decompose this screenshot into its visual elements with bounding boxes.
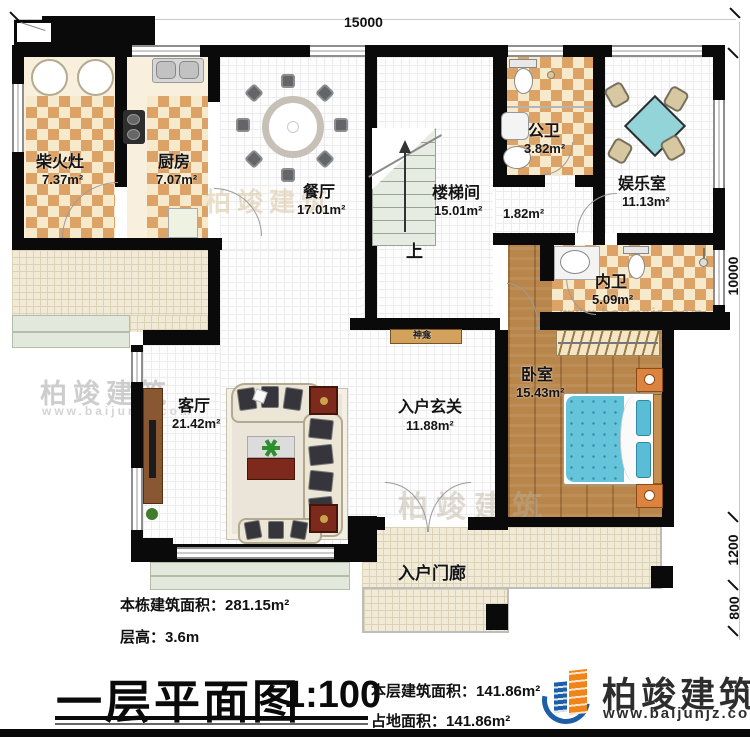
sofa-cushion [290,520,309,541]
room-area-kitchen: 7.07m² [156,173,197,187]
bed-headboard [653,394,662,484]
shower-head [699,258,708,267]
bed-pillow [636,400,651,436]
window [310,45,365,57]
top-dimension-label: 15000 [344,14,383,30]
room-area-foyer: 11.88m² [406,419,454,433]
wall-foyer-bottom [350,517,385,530]
left-terrace [12,250,208,315]
stove-burner [31,59,68,96]
terrace-step [12,332,130,348]
floor-height-label: 层高： [120,629,165,646]
room-area-hallway: 1.82m² [503,207,544,221]
living-front-step [150,562,350,576]
logo-building-orange [569,669,587,715]
bed-mattress [566,396,624,482]
dining-chair [334,118,348,132]
wall-inner-bath-left [540,245,554,281]
window [12,84,24,152]
pillar-porch-east [651,566,673,588]
sofa-cushion [308,418,334,440]
toilet-bowl [514,68,533,94]
room-label-public-bath: 公卫 [528,124,560,141]
nightstand-knob [644,490,655,501]
bath-sink [560,250,590,274]
kitchen-appliance [168,208,198,238]
sofa-cushion [244,520,263,541]
brand-logo-icon [542,664,598,726]
room-label-bedroom: 卧室 [521,368,553,385]
wall-bedroom-bottom [508,517,674,527]
building-area-label: 本栋建筑面积： [120,597,225,614]
stairs-up-label: 上 [406,243,423,261]
coffee-table-bottom [247,458,295,480]
footprint-label: 占地面积： [371,713,446,730]
dining-table-center [287,121,299,133]
wall-foyer-bottom [468,517,508,530]
room-label-inner-bath: 内卫 [595,275,627,292]
living-front-step [150,576,350,590]
dining-chair [281,168,295,182]
dimension-tick [729,7,740,18]
room-area-dining: 17.01m² [297,203,345,217]
window [132,45,200,57]
sofa-cushion [268,521,284,539]
room-label-porch: 入户门廊 [398,565,466,583]
title-underline-thin [55,723,368,725]
toilet-bowl [628,254,645,279]
gas-burner [127,114,140,125]
stove-burner [77,59,114,96]
floor-height-line: 层高：3.6m [120,626,199,647]
nightstand [636,368,663,392]
floor-area-line: 本层建筑面积：141.86m² [371,680,540,701]
scale-label: 1:100 [284,674,381,717]
room-label-stairwell: 楼梯间 [432,186,480,203]
room-area-inner-bath: 5.09m² [592,293,633,307]
sink-basin [156,61,176,79]
pillar-porch-south [486,604,508,630]
wall-living-top-left [143,330,220,345]
pillar-living-sw [131,538,173,562]
room-area-entertainment: 11.13m² [622,195,670,209]
wall-kitchen-bottom [12,238,222,250]
logo-building-blue [554,681,567,712]
bottom-border-bar [0,729,750,737]
building-area-value: 281.15m² [225,597,289,614]
dimension-tick [727,511,738,522]
tv-screen [149,420,156,478]
wall-kitchen-dining [208,57,220,102]
terrace-step [12,315,130,332]
right-dimension-label-10000: 10000 [725,248,741,304]
wall-terrace-dining [208,250,220,330]
sofa-cushion [283,387,304,411]
room-label-firewood: 柴火灶 [36,155,84,172]
room-area-living: 21.42m² [172,417,220,431]
footprint-value: 141.86m² [446,713,510,730]
gas-burner [127,129,140,140]
right-dimension-label-1200: 1200 [725,529,741,571]
wall-foyer-bedroom [495,330,508,517]
footprint-line: 占地面积：141.86m² [371,710,510,731]
side-table-knob [320,515,328,523]
floor-drain [547,71,555,79]
room-area-bedroom: 15.43m² [516,386,564,400]
stairs-direction-line [404,152,406,232]
nightstand-knob [644,374,655,385]
window [131,352,143,382]
room-label-living: 客厅 [178,399,210,416]
brand-url: www.baijunjz.com [603,705,750,722]
room-area-stairwell: 15.01m² [434,204,482,218]
window [131,468,143,530]
room-label-dining: 餐厅 [303,185,335,202]
side-table [309,504,338,533]
wall-bedroom-right [662,330,674,527]
floor-height-value: 3.6m [165,629,199,646]
plant-small [146,508,158,520]
floor-plan-canvas: 15000 10000 1200 800 柏竣建筑 www.baijunjz.c… [0,0,750,737]
wall-public-bath-bottom [493,175,545,187]
dining-chair [236,118,250,132]
room-label-kitchen: 厨房 [158,155,190,172]
dining-chair [281,74,295,88]
side-table-knob [320,397,328,405]
room-area-firewood: 7.37m² [42,173,83,187]
building-area-line: 本栋建筑面积：281.15m² [120,594,289,615]
toilet-tank [623,246,649,254]
floor-area-value: 141.86m² [476,683,540,700]
sink-basin [179,61,199,79]
wardrobe-rod [558,342,658,344]
shrine-label: 神龛 [413,331,431,340]
dimension-tick [727,579,738,590]
floor-area-label: 本层建筑面积： [371,683,476,700]
bed-pillow [636,442,651,478]
shower-tray [501,112,529,140]
window [177,547,334,559]
stairs-direction-arrowhead [399,140,411,153]
room-label-foyer: 入户玄关 [398,400,462,417]
dimension-tick [727,47,738,58]
room-area-public-bath: 3.82m² [524,142,565,156]
toilet-tank [509,59,537,68]
wall-entertainment-bottom [617,233,725,245]
window [713,250,725,305]
watermark-url: www.baijunjz.com [42,404,194,418]
wall-public-bath-bottom [575,175,593,187]
bath-partition-line [507,106,593,108]
wall-hallway-bottom [493,233,575,245]
window [508,45,563,57]
window [612,45,702,57]
nightstand [636,484,663,508]
shower-stem [703,248,705,258]
sofa-cushion [308,470,334,492]
side-table [309,386,338,415]
window [713,100,725,188]
wall-inner-bath-bottom [540,312,730,330]
dimension-tick [727,625,738,636]
chimney-block [42,16,155,47]
sofa-cushion [308,444,334,466]
room-label-entertainment: 娱乐室 [618,177,666,194]
right-dimension-label-800: 800 [726,590,742,626]
chimney-box [14,20,54,45]
